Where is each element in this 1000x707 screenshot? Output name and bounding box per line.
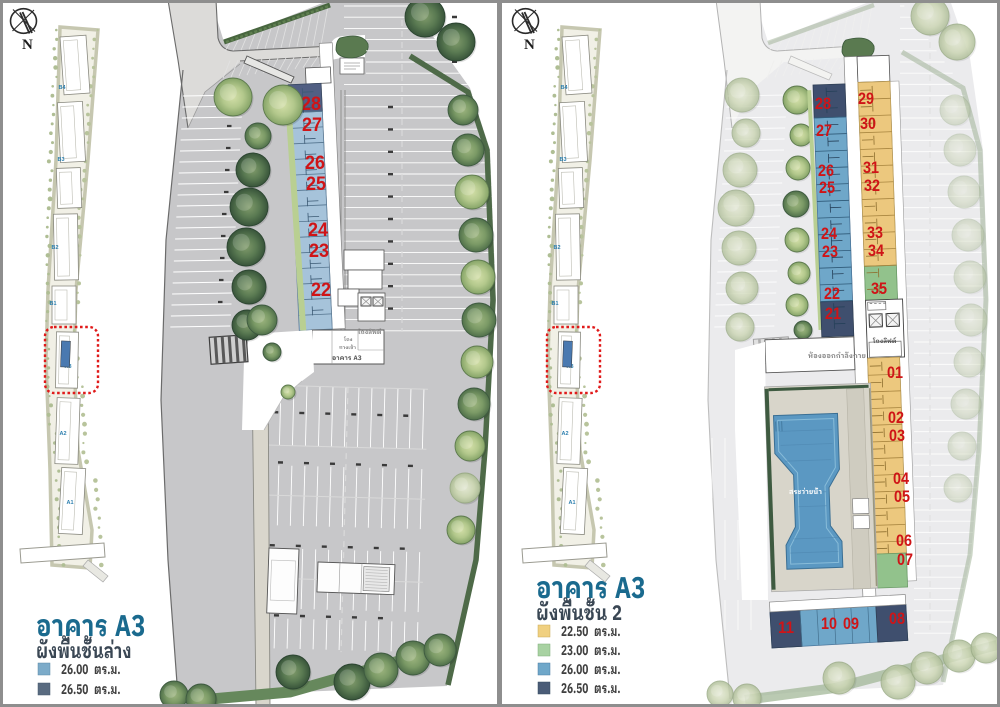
- svg-text:B1: B1: [49, 301, 56, 307]
- svg-text:A1: A1: [66, 500, 73, 506]
- svg-text:28: 28: [815, 94, 831, 113]
- svg-text:A2: A2: [561, 431, 568, 437]
- svg-text:22: 22: [311, 280, 331, 301]
- svg-text:B4: B4: [58, 85, 66, 91]
- svg-text:A1: A1: [568, 500, 575, 506]
- svg-text:09: 09: [843, 614, 859, 633]
- svg-text:22: 22: [824, 284, 840, 303]
- svg-text:21: 21: [825, 304, 841, 323]
- svg-text:24: 24: [308, 220, 328, 241]
- svg-text:A2: A2: [59, 431, 66, 437]
- svg-text:N: N: [22, 37, 33, 53]
- svg-text:27: 27: [302, 115, 322, 136]
- svg-text:B2: B2: [51, 245, 58, 251]
- svg-text:03: 03: [889, 426, 905, 445]
- svg-text:11: 11: [778, 618, 794, 637]
- svg-text:04: 04: [893, 469, 909, 488]
- svg-text:26: 26: [305, 153, 325, 174]
- svg-text:32: 32: [864, 176, 880, 195]
- svg-text:33: 33: [867, 223, 883, 242]
- svg-text:10: 10: [821, 614, 837, 633]
- svg-text:02: 02: [888, 408, 904, 427]
- svg-text:25: 25: [819, 178, 835, 197]
- svg-text:B3: B3: [559, 157, 566, 163]
- svg-text:27: 27: [816, 121, 832, 140]
- svg-text:29: 29: [858, 89, 874, 108]
- svg-text:08: 08: [889, 609, 905, 628]
- svg-text:01: 01: [887, 363, 903, 382]
- svg-text:34: 34: [868, 241, 884, 260]
- svg-text:B1: B1: [551, 301, 558, 307]
- svg-text:23: 23: [309, 241, 329, 262]
- svg-text:23: 23: [822, 242, 838, 261]
- svg-text:B2: B2: [553, 245, 560, 251]
- svg-text:31: 31: [863, 158, 879, 177]
- svg-text:07: 07: [897, 550, 913, 569]
- svg-text:06: 06: [896, 531, 912, 550]
- svg-text:N: N: [524, 37, 535, 53]
- svg-text:B3: B3: [57, 157, 64, 163]
- svg-text:25: 25: [306, 174, 326, 195]
- svg-text:24: 24: [821, 224, 837, 243]
- svg-text:05: 05: [894, 487, 910, 506]
- svg-text:35: 35: [871, 279, 887, 298]
- svg-text:B4: B4: [560, 85, 568, 91]
- svg-text:30: 30: [860, 114, 876, 133]
